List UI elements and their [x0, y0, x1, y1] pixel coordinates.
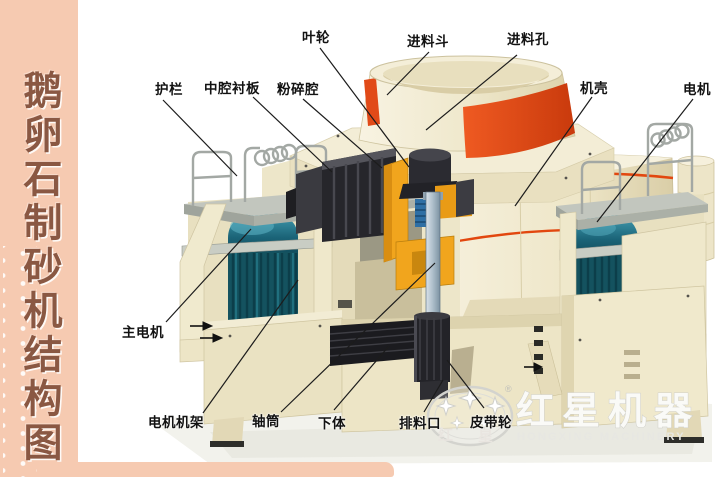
label-guardrail: 护栏: [155, 78, 183, 98]
watermark-logo: ® 红 星 红星机器 HONGXING MACHINERY: [428, 384, 700, 445]
page-title: 鹅卵石制砂机结构图: [11, 70, 67, 466]
label-feed-hole: 进料孔: [507, 28, 549, 48]
label-shaft-tube: 轴筒: [252, 410, 280, 430]
leader-guardrail: [163, 100, 237, 176]
label-lower-body: 下体: [318, 412, 346, 432]
label-cavity-liner: 中腔衬板: [204, 77, 260, 97]
label-feed-hopper: 进料斗: [407, 30, 449, 50]
sand-maker-illustration: ® 红 星 红星机器 HONGXING MACHINERY: [0, 0, 720, 477]
label-impeller: 叶轮: [302, 26, 330, 46]
main-shaft: [423, 192, 443, 324]
brand-name-cn: 红星机器: [516, 391, 700, 433]
label-discharge-port: 排料口: [399, 412, 441, 432]
bottom-accent-bar: [66, 462, 394, 477]
diagram-stage: ® 红 星 红星机器 HONGXING MACHINERY 叶轮 进料斗 进料孔…: [0, 0, 720, 477]
label-motor-frame: 电机机架: [148, 411, 204, 431]
label-casing: 机壳: [580, 77, 608, 97]
registered-mark: ®: [505, 384, 512, 394]
label-motor: 电机: [683, 78, 711, 98]
drive-belt: [330, 320, 416, 366]
title-sidebar: 鹅卵石制砂机结构图: [0, 0, 78, 477]
label-crushing-cavity: 粉碎腔: [277, 78, 319, 98]
brand-name-en: HONGXING MACHINERY: [517, 431, 686, 443]
label-belt-pulley: 皮带轮: [470, 411, 512, 431]
label-main-motor: 主电机: [122, 321, 164, 341]
